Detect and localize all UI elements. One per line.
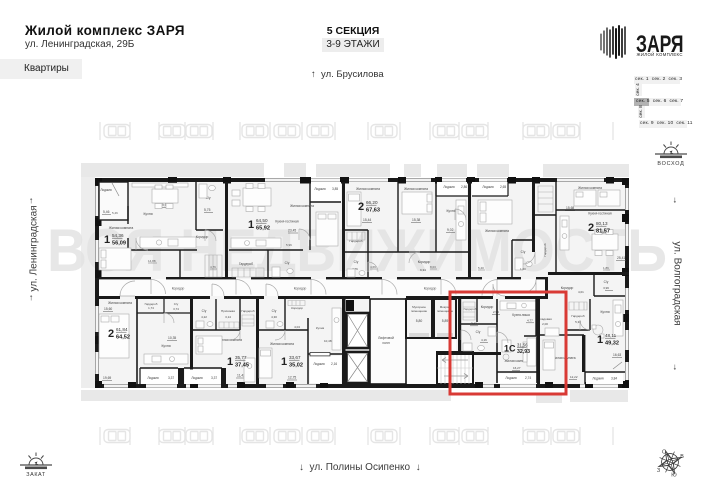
svg-text:Коридор: Коридор: [418, 260, 431, 264]
svg-text:холл: холл: [382, 341, 389, 345]
svg-text:Кухня: Кухня: [161, 344, 170, 348]
svg-text:9,34: 9,34: [420, 268, 426, 272]
svg-text:Гардероб: Гардероб: [543, 243, 547, 256]
svg-text:Лифтовой: Лифтовой: [378, 336, 394, 340]
svg-text:Жилая комната: Жилая комната: [108, 301, 132, 305]
svg-text:4,22: 4,22: [201, 315, 207, 319]
svg-text:Лоджия: Лоджия: [147, 376, 159, 380]
svg-text:48,11: 48,11: [605, 333, 617, 338]
svg-text:Жилая комната: Жилая комната: [109, 226, 134, 230]
svg-text:2,74: 2,74: [525, 376, 531, 380]
svg-text:4,30: 4,30: [271, 315, 277, 319]
svg-text:Лоджия: Лоджия: [482, 185, 494, 189]
svg-text:65,92: 65,92: [256, 226, 270, 232]
svg-text:1: 1: [227, 356, 233, 368]
svg-text:Кухня: Кухня: [600, 310, 609, 314]
svg-text:54,36: 54,36: [112, 233, 124, 238]
svg-text:4,04: 4,04: [294, 325, 300, 329]
svg-text:3,84: 3,84: [611, 377, 617, 381]
svg-text:Прихожая: Прихожая: [221, 309, 235, 313]
svg-text:Коридор: Коридор: [294, 287, 307, 291]
svg-text:Жилая комната: Жилая комната: [290, 204, 314, 208]
svg-text:3,37: 3,37: [168, 376, 174, 380]
svg-text:2,94: 2,94: [493, 310, 499, 314]
svg-text:Коридор: Коридор: [291, 306, 303, 310]
svg-text:10,35: 10,35: [168, 336, 176, 340]
svg-text:5,46: 5,46: [103, 210, 110, 214]
svg-text:Коридор: Коридор: [172, 287, 185, 291]
svg-text:3,37: 3,37: [211, 376, 217, 380]
svg-text:С/у: С/у: [285, 261, 290, 265]
svg-text:80,13: 80,13: [596, 221, 608, 226]
svg-text:12,75: 12,75: [288, 376, 296, 380]
svg-text:1,86: 1,86: [603, 266, 609, 270]
svg-text:25,41: 25,41: [617, 256, 625, 260]
svg-text:32,93: 32,93: [517, 349, 530, 355]
svg-text:Гардероб: Гардероб: [571, 314, 584, 318]
svg-text:81,57: 81,57: [596, 229, 610, 235]
svg-text:3,14: 3,14: [225, 315, 231, 319]
svg-text:4,69: 4,69: [370, 265, 376, 269]
svg-text:3,96: 3,96: [603, 286, 609, 290]
svg-text:С/у: С/у: [202, 309, 207, 313]
svg-text:67,63: 67,63: [366, 208, 380, 214]
svg-text:4,76: 4,76: [210, 265, 216, 269]
svg-text:Кухня: Кухня: [446, 209, 455, 213]
svg-text:Лоджия: Лоджия: [313, 362, 325, 366]
svg-text:Коридор: Коридор: [196, 235, 209, 239]
svg-text:15,38: 15,38: [412, 218, 420, 222]
svg-text:Лоджия: Лоджия: [100, 188, 112, 192]
svg-text:12,22: 12,22: [570, 375, 578, 379]
svg-text:2: 2: [358, 201, 364, 213]
svg-text:1: 1: [104, 234, 110, 246]
svg-text:5,89: 5,89: [442, 319, 449, 323]
svg-text:Кухня-гостиная: Кухня-гостиная: [588, 212, 612, 216]
svg-text:Лоджия: Лоджия: [505, 376, 517, 380]
svg-text:помещение: помещение: [411, 309, 427, 313]
svg-text:Кухня: Кухня: [316, 326, 325, 330]
svg-text:Лоджия: Лоджия: [443, 185, 455, 189]
svg-text:23,45: 23,45: [288, 229, 296, 233]
svg-text:14,88: 14,88: [148, 259, 156, 263]
svg-text:61,84: 61,84: [116, 327, 128, 332]
svg-text:С/у: С/у: [272, 309, 277, 313]
svg-text:Жилая комната: Жилая комната: [270, 342, 294, 346]
svg-text:Жилая комната: Жилая комната: [552, 356, 575, 360]
svg-text:1: 1: [281, 356, 287, 368]
svg-text:1,74: 1,74: [148, 306, 154, 310]
svg-text:2: 2: [588, 222, 594, 234]
svg-text:2,16: 2,16: [331, 362, 337, 366]
svg-text:Гардероб: Гардероб: [239, 262, 253, 266]
svg-text:Жилая комната: Жилая комната: [485, 229, 509, 233]
svg-text:1С: 1С: [504, 344, 516, 354]
svg-text:С/у: С/у: [174, 302, 179, 306]
svg-text:2,00: 2,00: [542, 322, 548, 326]
svg-text:5,96: 5,96: [286, 243, 292, 247]
svg-text:Кухня-гостиная: Кухня-гостиная: [275, 220, 299, 224]
svg-text:3,74: 3,74: [173, 307, 179, 311]
svg-text:8,03: 8,03: [430, 265, 436, 269]
svg-text:4,16: 4,16: [481, 338, 487, 342]
svg-text:9,02: 9,02: [447, 228, 454, 232]
svg-text:16,63: 16,63: [613, 353, 621, 357]
svg-text:15,60: 15,60: [104, 307, 112, 311]
svg-text:С/у: С/у: [354, 260, 359, 264]
svg-text:3,85: 3,85: [332, 187, 338, 191]
svg-text:Лоджия: Лоджия: [314, 187, 326, 191]
svg-text:5,40: 5,40: [478, 266, 484, 270]
svg-text:64,52: 64,52: [116, 335, 130, 341]
svg-text:Лоджия: Лоджия: [592, 377, 604, 381]
svg-text:1: 1: [597, 334, 603, 346]
svg-text:10,48: 10,48: [324, 339, 332, 343]
svg-text:1: 1: [248, 219, 254, 231]
svg-text:5,46: 5,46: [112, 211, 118, 215]
svg-text:15,44: 15,44: [363, 218, 371, 222]
svg-text:Лоджия: Лоджия: [191, 376, 203, 380]
svg-text:5,75: 5,75: [204, 208, 211, 212]
svg-text:Кладовая: Кладовая: [538, 317, 552, 321]
svg-text:64,50: 64,50: [256, 218, 268, 223]
svg-text:Гардероб: Гардероб: [349, 239, 362, 243]
svg-text:16,27: 16,27: [513, 366, 521, 370]
svg-text:Жилая комната: Жилая комната: [404, 187, 428, 191]
svg-text:С/у: С/у: [604, 280, 609, 284]
svg-text:35,02: 35,02: [289, 363, 303, 369]
svg-text:56,09: 56,09: [112, 241, 126, 247]
svg-text:Коридор: Коридор: [424, 287, 437, 291]
svg-text:С/у: С/у: [521, 250, 526, 254]
svg-text:37,45: 37,45: [235, 363, 249, 369]
svg-text:Коридор: Коридор: [481, 305, 494, 309]
svg-text:4,01: 4,01: [578, 290, 584, 294]
svg-text:2: 2: [108, 328, 114, 340]
svg-text:Гардероб: Гардероб: [464, 307, 477, 311]
svg-text:1,60: 1,60: [520, 267, 526, 271]
svg-text:66,20: 66,20: [366, 200, 378, 205]
svg-text:Коридор: Коридор: [561, 286, 574, 290]
svg-text:Кухня-ниша: Кухня-ниша: [512, 313, 530, 317]
svg-text:5,80: 5,80: [416, 319, 423, 323]
svg-text:33,67: 33,67: [289, 355, 301, 360]
svg-text:35,77: 35,77: [235, 355, 247, 360]
svg-text:С/у: С/у: [476, 330, 481, 334]
svg-text:49,32: 49,32: [605, 341, 619, 347]
svg-text:Жилая комната: Жилая комната: [578, 186, 602, 190]
svg-text:31,56: 31,56: [517, 343, 528, 348]
svg-text:19,69: 19,69: [103, 376, 111, 380]
svg-text:Жилая комната: Жилая комната: [356, 187, 380, 191]
svg-text:4,77: 4,77: [527, 319, 533, 323]
svg-text:2,86: 2,86: [461, 185, 467, 189]
svg-text:Гардероб: Гардероб: [241, 309, 254, 313]
svg-text:Кухня: Кухня: [143, 212, 152, 216]
svg-text:2,65: 2,65: [500, 185, 506, 189]
